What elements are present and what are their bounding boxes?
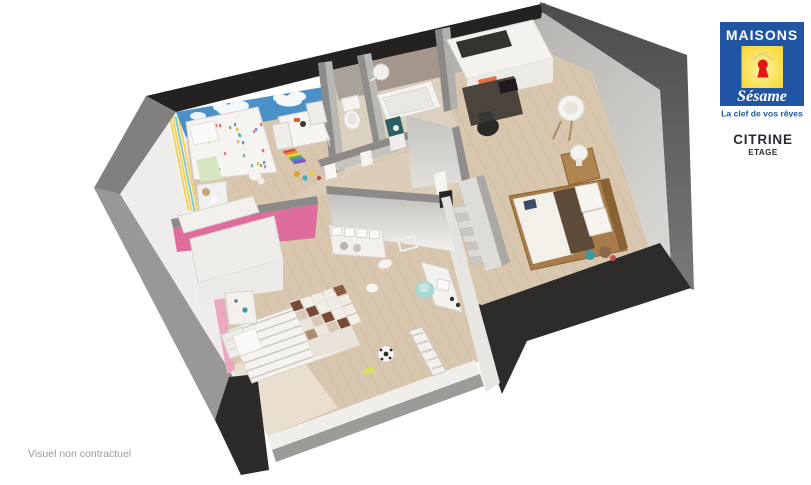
svg-text:Sésame: Sésame <box>737 88 787 105</box>
svg-text:Visuel non contractuel: Visuel non contractuel <box>28 448 131 460</box>
svg-text:MAISONS: MAISONS <box>726 27 798 43</box>
svg-text:ETAGE: ETAGE <box>748 148 778 157</box>
svg-text:La clef de vos rêves: La clef de vos rêves <box>721 109 803 119</box>
svg-text:CITRINE: CITRINE <box>733 132 793 147</box>
